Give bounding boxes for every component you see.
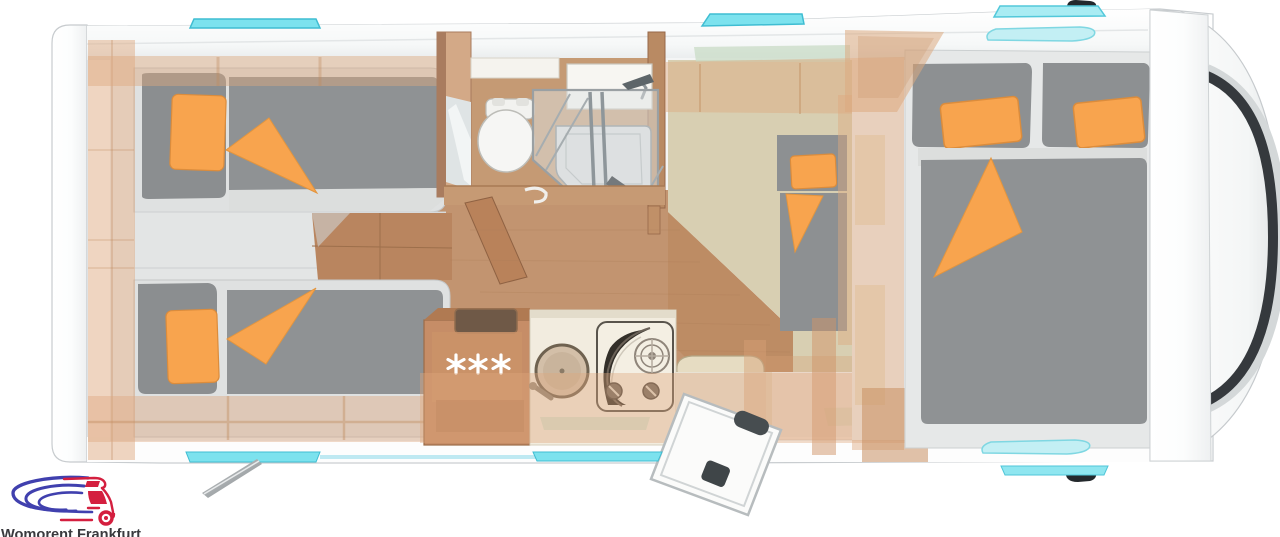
svg-text:Womorent Frankfurt: Womorent Frankfurt [1, 527, 141, 537]
